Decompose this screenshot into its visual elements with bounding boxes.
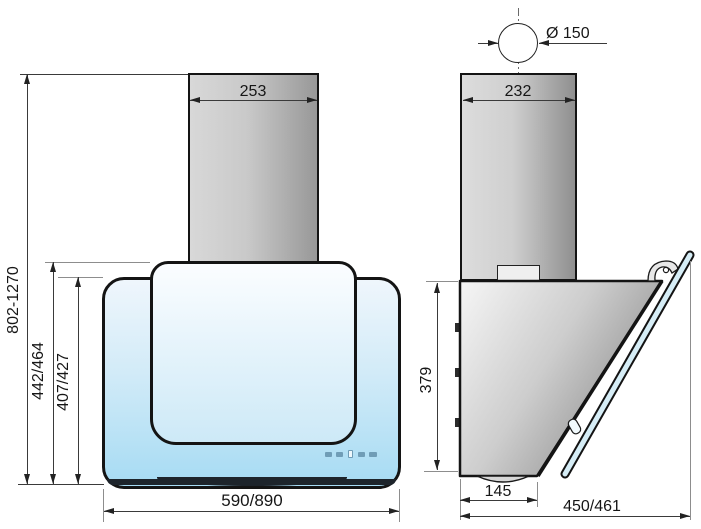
- arrowhead: [434, 283, 440, 293]
- side-body-wedge: [460, 281, 662, 476]
- lamp-arc: [477, 476, 529, 482]
- ext-line-total-height: [45, 262, 150, 263]
- dim-label-body-depth: 145: [473, 484, 523, 500]
- arrowhead: [190, 97, 200, 103]
- control-button-2: [336, 452, 343, 457]
- dim-line-body-height: [437, 283, 438, 470]
- front-inner-panel: [150, 261, 357, 445]
- glass-clip: [567, 418, 582, 435]
- control-button-3: [358, 452, 365, 457]
- arrowhead: [104, 508, 114, 514]
- dim-label-glass-height: 407/427: [56, 347, 72, 417]
- arrowhead: [75, 474, 81, 484]
- control-display: [348, 450, 353, 458]
- arrowhead: [565, 97, 575, 103]
- dim-line-total-depth: [460, 516, 690, 517]
- arrowhead: [434, 460, 440, 470]
- arrowhead: [680, 513, 690, 519]
- arrowhead: [24, 74, 30, 84]
- dim-label-side-chimney: 232: [488, 84, 548, 100]
- ext-line-width-right: [399, 489, 400, 522]
- hinge-pin: [663, 267, 668, 272]
- dim-line-height-range: [27, 74, 28, 484]
- arrowhead: [24, 474, 30, 484]
- ext-line-top: [20, 74, 188, 75]
- dim-label-front-chimney: 253: [223, 84, 283, 100]
- dim-label-total-height: 442/464: [31, 336, 47, 406]
- arrowhead: [75, 277, 81, 287]
- dim-line-glass-height: [78, 277, 79, 484]
- ext-line-depth-mid: [537, 482, 538, 507]
- dim-line-side-chimney: [463, 100, 575, 101]
- control-button-1: [325, 452, 332, 457]
- dim-label-total-depth: 450/461: [547, 499, 637, 515]
- arrowhead: [307, 97, 317, 103]
- ext-line-body-top: [426, 281, 458, 282]
- leader-line-duct-right: [539, 43, 607, 44]
- dim-label-height-range: 802-1270: [6, 255, 22, 345]
- arrowhead: [50, 474, 56, 484]
- dim-line-front-chimney: [190, 100, 317, 101]
- dim-label-width: 590/890: [207, 493, 297, 509]
- dim-label-duct-diameter: Ø 150: [546, 26, 608, 42]
- control-button-4: [369, 452, 377, 457]
- arrowhead: [460, 513, 470, 519]
- ext-line-width-left: [103, 489, 104, 522]
- arrowhead: [527, 497, 537, 503]
- front-chimney: [188, 73, 319, 281]
- dim-line-width: [104, 511, 399, 512]
- dim-label-body-height: 379: [419, 360, 435, 400]
- ext-line-body-bottom: [424, 471, 458, 472]
- arrowhead: [389, 508, 399, 514]
- arrowhead: [488, 40, 498, 46]
- dim-line-total-height: [53, 262, 54, 484]
- ext-line-baseline: [18, 484, 104, 485]
- duct-circle: [498, 23, 538, 63]
- dimension-drawing-canvas: 802-1270 442/464 407/427 253 590/890: [0, 0, 701, 529]
- arrowhead: [50, 262, 56, 272]
- side-body-glass: [420, 240, 701, 529]
- ext-line-depth-right: [690, 261, 691, 520]
- arrowhead: [463, 97, 473, 103]
- dim-line-body-depth: [460, 500, 537, 501]
- arrowhead: [460, 497, 470, 503]
